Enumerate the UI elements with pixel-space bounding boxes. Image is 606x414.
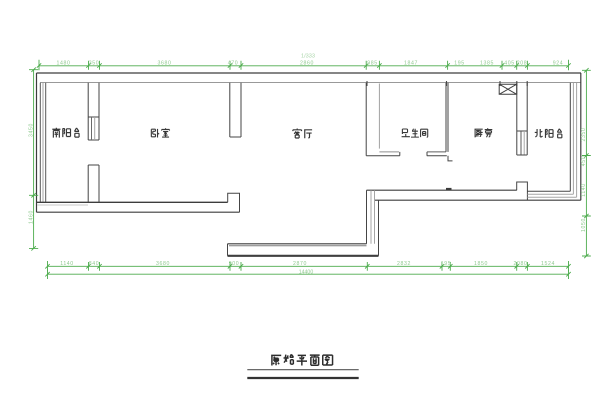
svg-text:3450: 3450 — [28, 123, 34, 137]
svg-text:405: 405 — [504, 60, 514, 66]
svg-text:1850: 1850 — [474, 261, 488, 267]
svg-text:1/333: 1/333 — [301, 54, 315, 60]
svg-text:2832: 2832 — [397, 261, 411, 267]
svg-text:1140: 1140 — [581, 183, 587, 197]
svg-text:1847: 1847 — [404, 60, 418, 66]
svg-text:3680: 3680 — [156, 261, 170, 267]
svg-text:470: 470 — [228, 60, 238, 66]
svg-text:350: 350 — [89, 60, 99, 66]
svg-text:195: 195 — [454, 60, 464, 66]
svg-text:450: 450 — [581, 156, 587, 166]
svg-text:2080: 2080 — [514, 261, 528, 267]
svg-text:208: 208 — [517, 60, 527, 66]
svg-text:195: 195 — [441, 261, 451, 267]
svg-text:2350: 2350 — [581, 128, 587, 142]
svg-text:1050: 1050 — [581, 218, 587, 232]
svg-text:985: 985 — [367, 60, 377, 66]
svg-text:2860: 2860 — [300, 60, 314, 66]
svg-text:14400: 14400 — [299, 270, 314, 276]
svg-text:924: 924 — [553, 60, 563, 66]
svg-text:840: 840 — [89, 261, 99, 267]
svg-text:3680: 3680 — [158, 60, 172, 66]
svg-text:1524: 1524 — [541, 261, 555, 267]
svg-text:1140: 1140 — [60, 261, 74, 267]
svg-text:1480: 1480 — [57, 60, 71, 66]
svg-text:1385: 1385 — [480, 60, 494, 66]
svg-text:2870: 2870 — [293, 261, 307, 267]
svg-text:1460: 1460 — [28, 210, 34, 224]
svg-text:900: 900 — [229, 261, 239, 267]
